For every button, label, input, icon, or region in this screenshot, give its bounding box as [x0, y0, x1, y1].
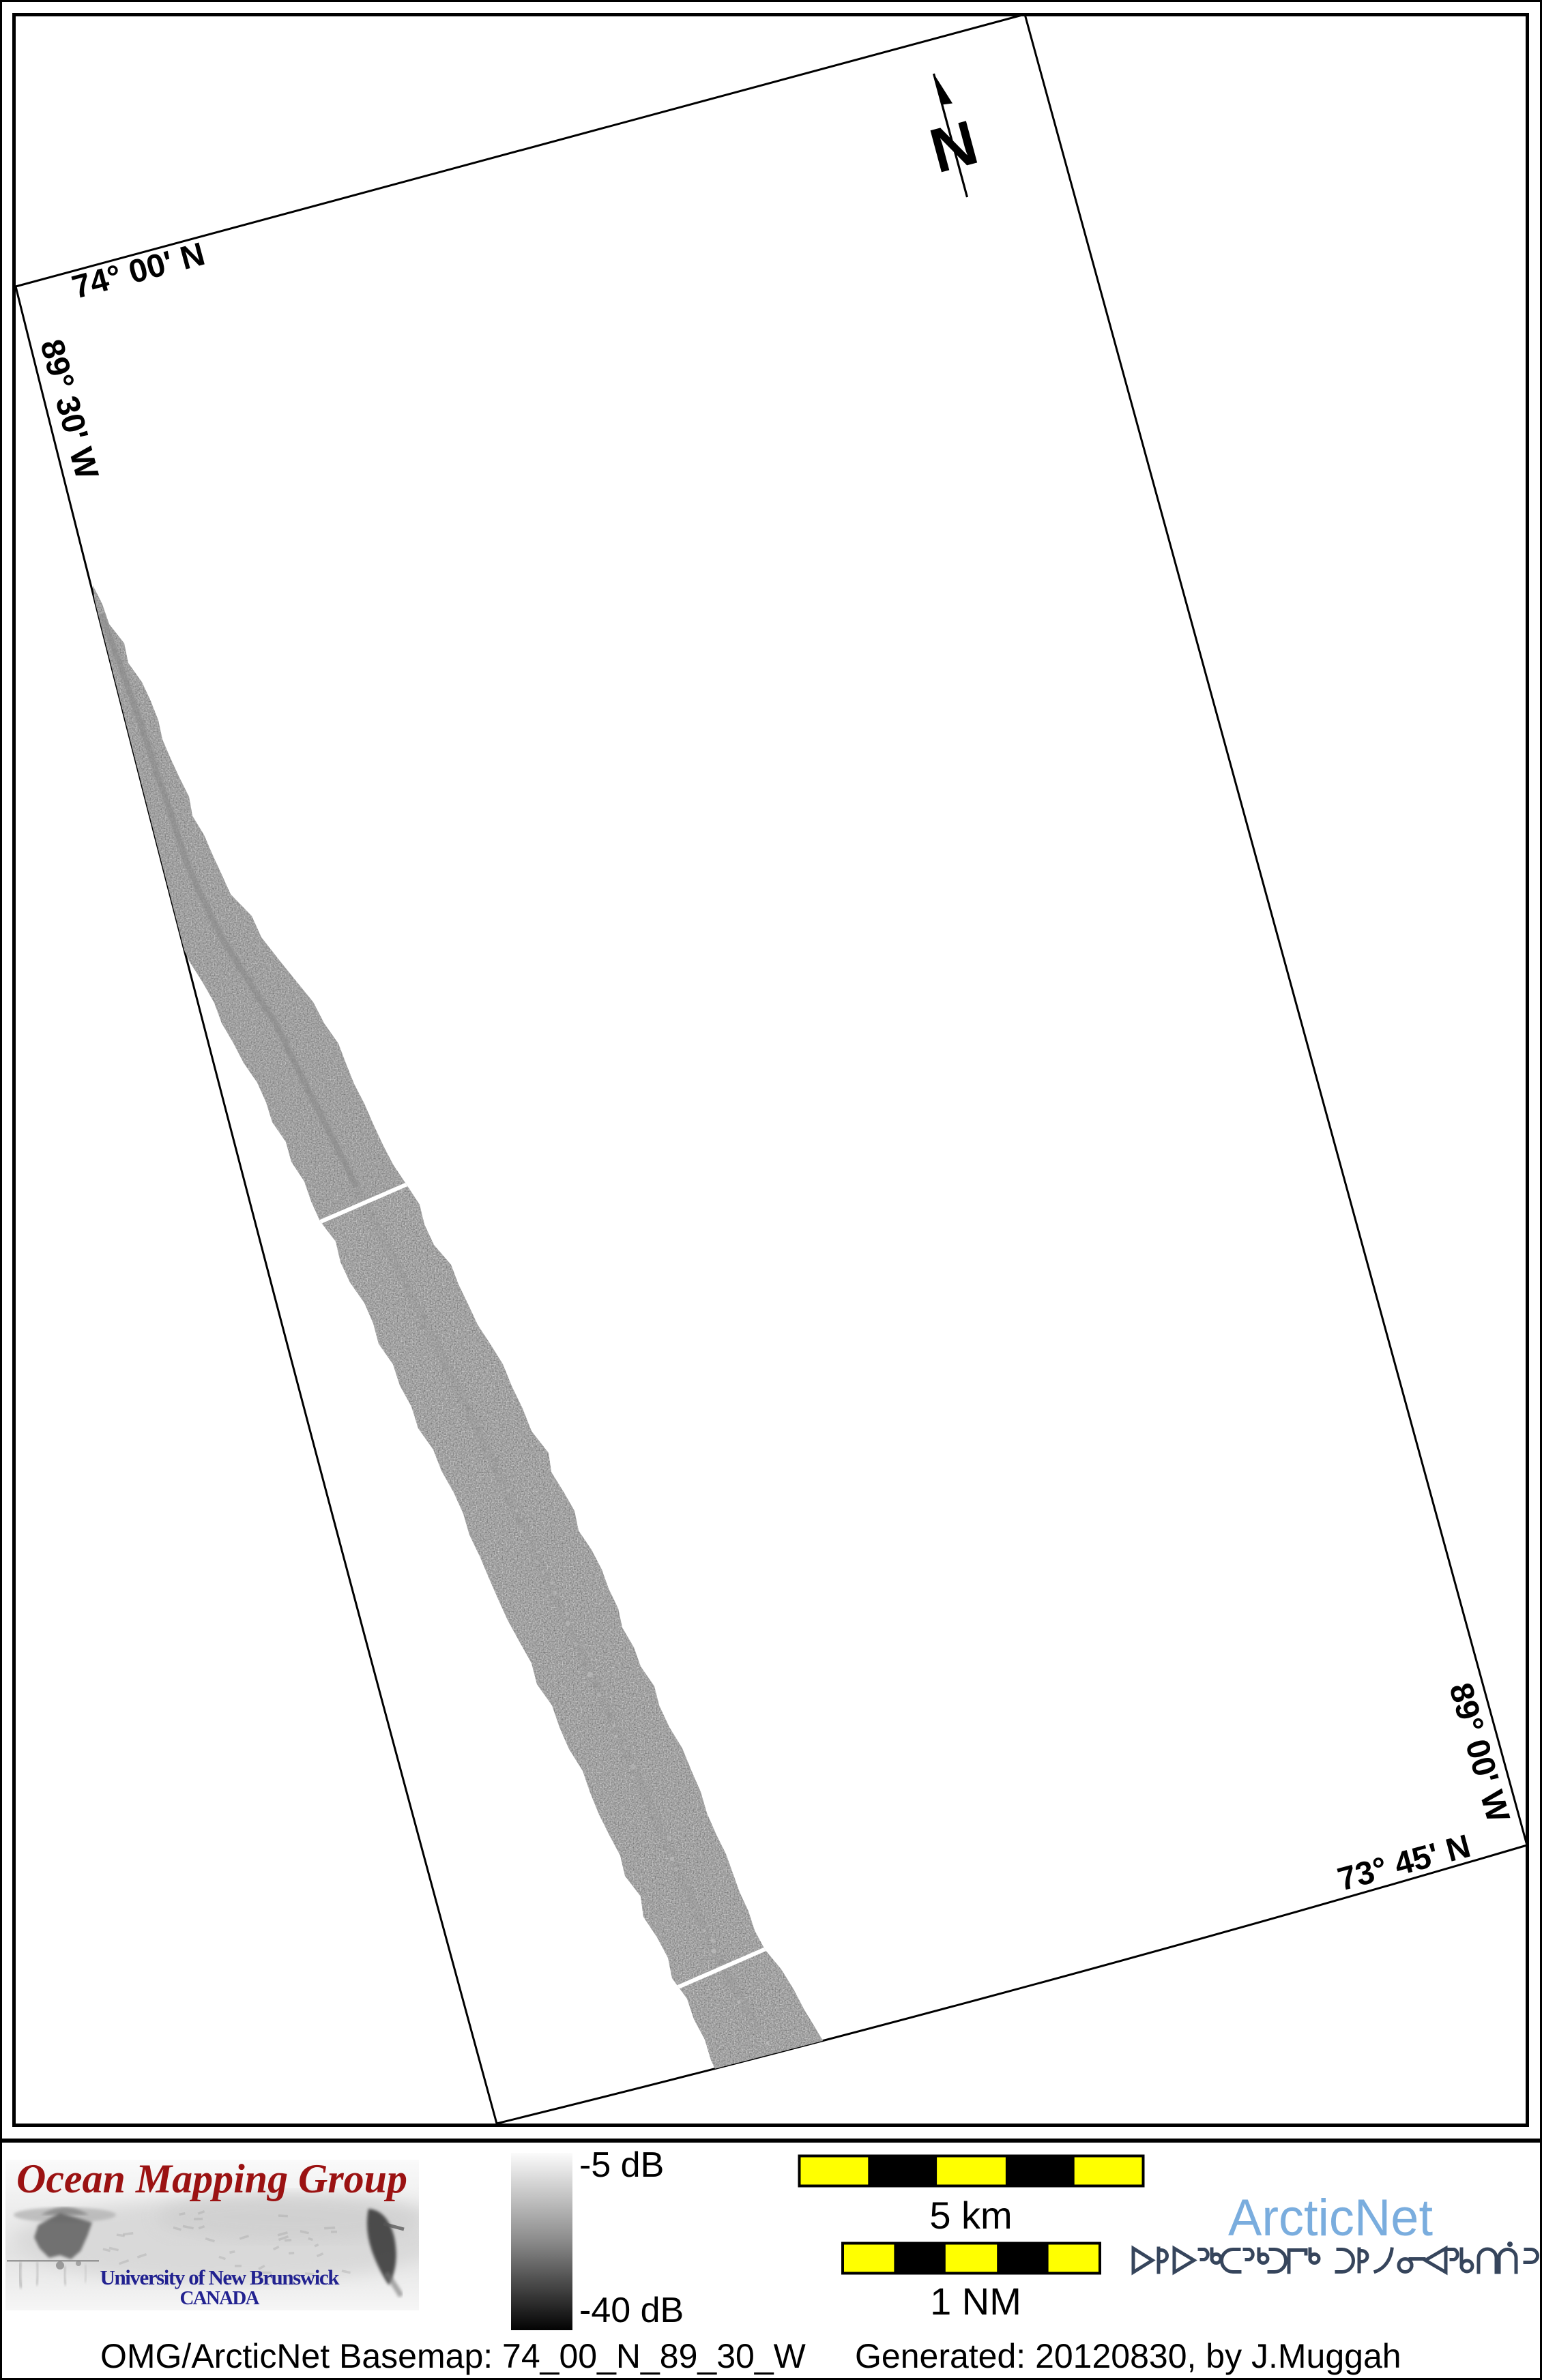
svg-text:-5 dB: -5 dB [579, 2145, 664, 2185]
svg-text:University of New Brunswick: University of New Brunswick [100, 2265, 340, 2289]
svg-text:OMG/ArcticNet Basemap: 74_00_N: OMG/ArcticNet Basemap: 74_00_N_89_30_W [100, 2337, 806, 2375]
svg-text:1 NM: 1 NM [930, 2280, 1021, 2323]
svg-text:5 km: 5 km [929, 2194, 1012, 2237]
svg-text:Ocean Mapping Group: Ocean Mapping Group [16, 2156, 407, 2201]
svg-text:CANADA: CANADA [180, 2287, 260, 2309]
svg-text:ArcticNet: ArcticNet [1228, 2189, 1433, 2247]
svg-text:-40 dB: -40 dB [579, 2291, 684, 2330]
svg-text:Generated: 20120830, by J.Mugg: Generated: 20120830, by J.Muggah [855, 2337, 1401, 2375]
